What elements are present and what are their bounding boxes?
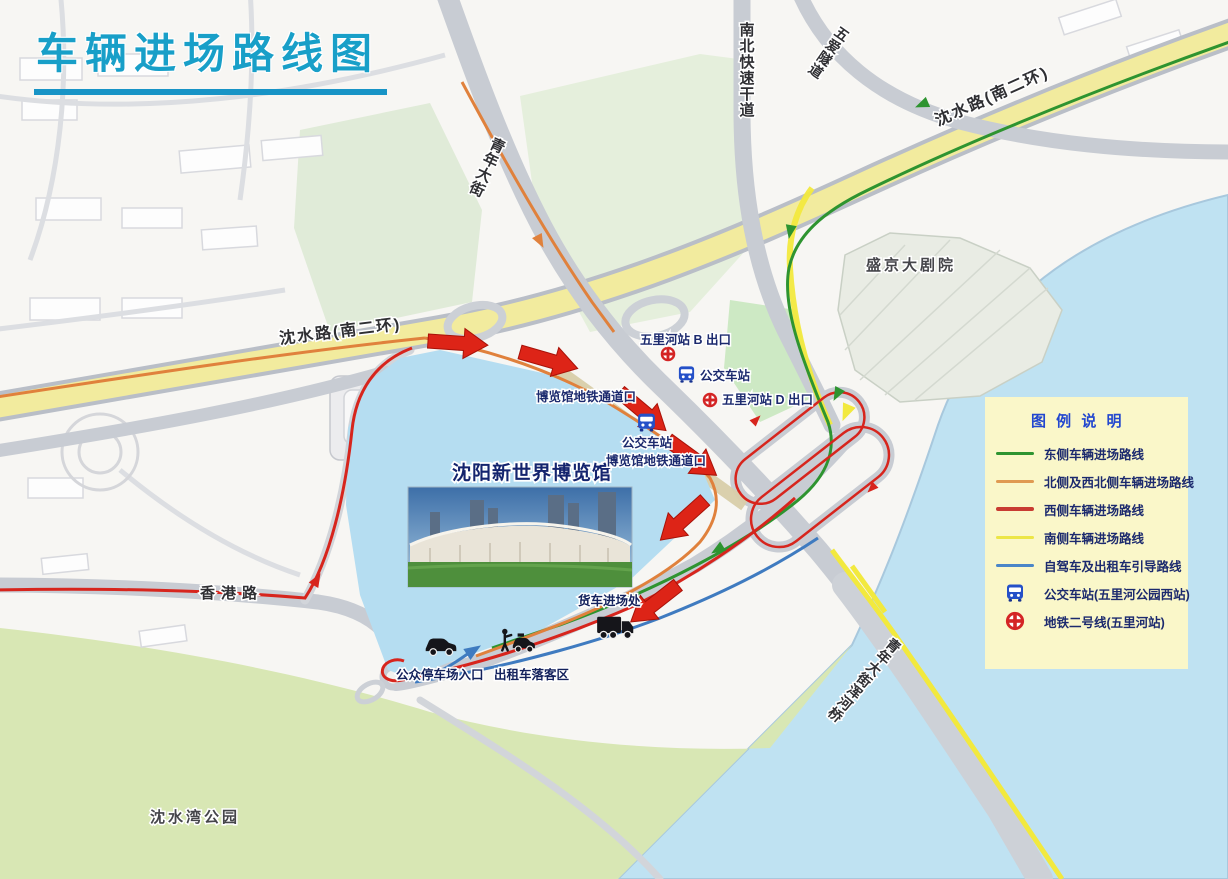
- label-shengjing-theatre: 盛京大剧院: [866, 256, 956, 274]
- north-route-line-swatch: [995, 480, 1035, 483]
- legend-item-metro-line: 地铁二号线(五里河站): [985, 607, 1188, 635]
- legend-box: 图 例 说 明 东侧车辆进场路线 北侧及西北侧车辆进场路线 西侧车辆进场路线 南…: [985, 397, 1188, 669]
- label-metro-exit-d: 五里河站 D 出口: [722, 392, 813, 407]
- legend-label: 公交车站(五里河公园西站): [1044, 584, 1190, 603]
- legend-item-bus-station: 公交车站(五里河公园西站): [985, 579, 1188, 607]
- legend-item-north-route: 北侧及西北侧车辆进场路线: [985, 467, 1188, 495]
- legend-label: 地铁二号线(五里河站): [1044, 612, 1165, 631]
- label-hongkong-road: 香港路: [200, 584, 263, 602]
- label-metro-passage-north: 博览馆地铁通道口: [536, 389, 636, 404]
- label-public-parking: 公众停车场入口: [396, 667, 484, 682]
- east-route-line-swatch: [995, 452, 1035, 455]
- legend-label: 自驾车及出租车引导路线: [1044, 556, 1182, 575]
- label-truck-entrance: 货车进场处: [578, 593, 641, 608]
- legend-label: 北侧及西北侧车辆进场路线: [1044, 472, 1194, 491]
- label-taxi-dropoff: 出租车落客区: [494, 667, 570, 682]
- guide-route-line-swatch: [995, 564, 1035, 567]
- label-north-south-expressway: 南北快速干道: [738, 21, 755, 118]
- legend-label: 东侧车辆进场路线: [1044, 444, 1144, 463]
- route-map-page: 青年大街 南北快速干道 五爱隧道 沈水路(南二环) 沈水路(南二环) 香港路 青…: [0, 0, 1228, 879]
- bus-icon: [995, 583, 1035, 603]
- label-metro-exit-b: 五里河站 B 出口: [640, 332, 731, 347]
- legend-item-south-route: 南侧车辆进场路线: [985, 523, 1188, 551]
- legend-item-guide-route: 自驾车及出租车引导路线: [985, 551, 1188, 579]
- expo-photo: [408, 487, 632, 587]
- label-expo-center: 沈阳新世界博览馆: [452, 461, 612, 484]
- west-route-line-swatch: [995, 507, 1035, 511]
- metro-exit-d-icon: [704, 394, 716, 406]
- south-route-line-swatch: [995, 536, 1035, 539]
- metro-icon: [995, 611, 1035, 631]
- legend-label: 西侧车辆进场路线: [1044, 500, 1144, 519]
- label-shenshui-bay-park: 沈水湾公园: [150, 808, 240, 826]
- legend-item-west-route: 西侧车辆进场路线: [985, 495, 1188, 523]
- legend-title: 图 例 说 明: [1031, 410, 1188, 431]
- legend-label: 南侧车辆进场路线: [1044, 528, 1144, 547]
- label-bus-station-west: 公交车站: [622, 435, 673, 450]
- metro-exit-b-icon: [662, 348, 674, 360]
- label-metro-passage-east: 博览馆地铁通道口: [606, 453, 706, 468]
- label-bus-station-north: 公交车站: [700, 368, 751, 383]
- legend-item-east-route: 东侧车辆进场路线: [985, 439, 1188, 467]
- page-title: 车辆进场路线图: [34, 20, 387, 95]
